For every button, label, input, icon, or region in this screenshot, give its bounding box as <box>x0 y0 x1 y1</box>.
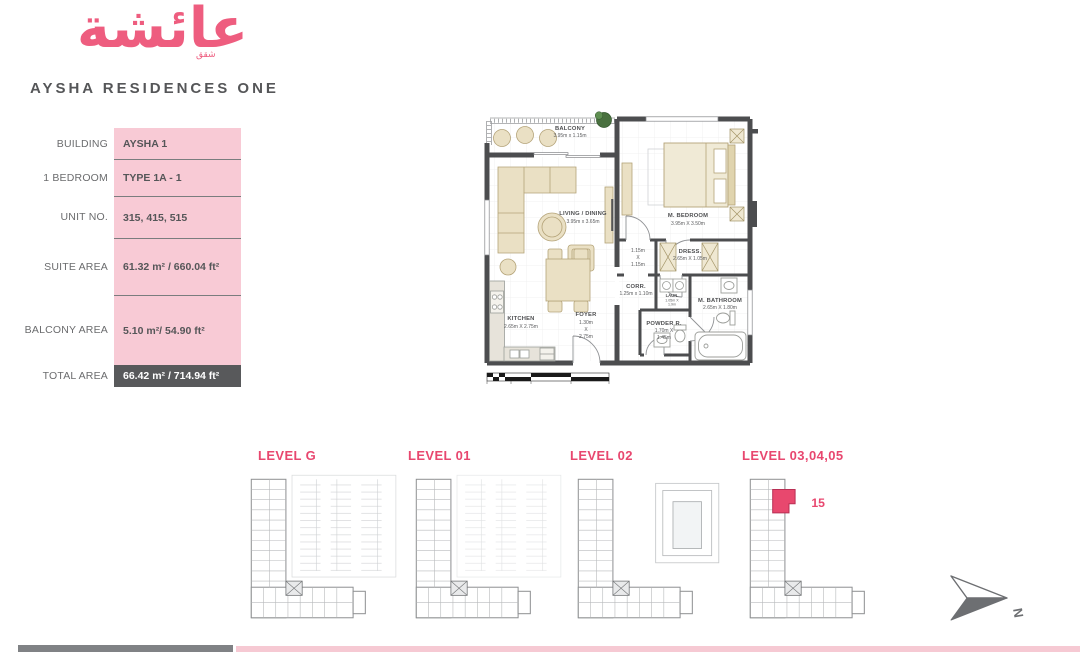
level-g-title: LEVEL G <box>235 448 403 463</box>
row-label: SUITE AREA <box>0 238 114 295</box>
table-row-building: BUILDING AYSHA 1 <box>0 128 241 159</box>
label-kitchen: KITCHEN <box>507 316 534 322</box>
table-row-bedroom-type: 1 BEDROOM TYPE 1A - 1 <box>0 159 241 196</box>
dims-corr: 1.25m x 1.10m <box>619 291 652 297</box>
unit-number-badge: 15 <box>811 496 825 510</box>
table-row-unit-no: UNIT NO. 315, 415, 515 <box>0 196 241 238</box>
dims-powder-1: 1.70m X <box>655 328 674 334</box>
row-value: AYSHA 1 <box>114 128 241 159</box>
laundry-machines <box>660 279 686 292</box>
arabic-logo: عائشة <box>55 0 270 64</box>
balcony-furniture <box>494 127 557 147</box>
flyer-page: عائشة شقق AYSHA RESIDENCES ONE BUILDING … <box>0 0 1080 654</box>
dims-powder-2: 1.45m <box>657 335 671 341</box>
row-value: TYPE 1A - 1 <box>114 159 241 196</box>
label-balcony: BALCONY <box>555 126 585 132</box>
level-02-title: LEVEL 02 <box>562 448 730 463</box>
dims-foyer-3: 2.75m <box>579 334 593 340</box>
row-label: BUILDING <box>0 128 114 159</box>
row-label: 1 BEDROOM <box>0 159 114 196</box>
dims-dress: 2.65m X 1.05m <box>673 256 707 262</box>
arabic-logo-subtext: شقق <box>196 50 216 60</box>
level-01-plan <box>400 463 568 631</box>
label-powder: POWDER R. <box>646 321 681 327</box>
dims-closet-1: 1.15m <box>631 248 645 254</box>
dims-kitchen: 2.65m X 2.75m <box>504 324 538 330</box>
north-label: N <box>1010 607 1026 619</box>
wall-pier <box>750 201 757 227</box>
level-02-plan <box>562 463 730 631</box>
wall-step <box>750 129 758 134</box>
row-label: UNIT NO. <box>0 196 114 238</box>
table-row-balcony-area: BALCONY AREA 5.10 m²/ 54.90 ft² <box>0 295 241 365</box>
highlighted-unit-15 <box>773 489 795 512</box>
unit-details-table: BUILDING AYSHA 1 1 BEDROOM TYPE 1A - 1 U… <box>0 128 241 387</box>
level-01-title: LEVEL 01 <box>400 448 568 463</box>
footer-bar-pink <box>236 646 1080 652</box>
north-arrow: N <box>945 568 1030 630</box>
label-foyer: FOYER <box>576 312 598 318</box>
label-living: LIVING / DINING <box>559 211 607 217</box>
level-g-panel: LEVEL G <box>235 448 403 636</box>
row-value: 5.10 m²/ 54.90 ft² <box>114 295 241 365</box>
dims-laun-2: 1.9m <box>668 303 676 307</box>
dims-foyer-1: 1.30m <box>579 320 593 326</box>
level-g-plan <box>235 463 403 631</box>
dims-closet-3: 1.15m <box>631 262 645 268</box>
level-030405-plan: 15 <box>734 463 902 631</box>
level-030405-title: LEVEL 03,04,05 <box>734 448 902 463</box>
page-title: AYSHA RESIDENCES ONE <box>30 80 279 97</box>
table-row-total-area: TOTAL AREA 66.42 m² / 714.94 ft² <box>0 365 241 387</box>
unit-floor-plan: BALCONY 3.95m x 1.15m LIVING / DINING 3.… <box>478 105 763 390</box>
level-030405-panel: LEVEL 03,04,05 15 <box>734 448 902 636</box>
footer-bar-gray <box>18 645 233 652</box>
row-value: 66.42 m² / 714.94 ft² <box>114 365 241 387</box>
row-value: 315, 415, 515 <box>114 196 241 238</box>
label-dress: DRESS. <box>679 249 702 255</box>
row-label: TOTAL AREA <box>0 365 114 387</box>
row-label: BALCONY AREA <box>0 295 114 365</box>
dims-bathroom: 2.65m X 1.80m <box>703 305 737 311</box>
row-value: 61.32 m² / 660.04 ft² <box>114 238 241 295</box>
level-01-panel: LEVEL 01 <box>400 448 568 636</box>
label-bathroom: M. BATHROOM <box>698 298 742 304</box>
dims-living: 3.95m x 3.65m <box>566 219 599 225</box>
level-02-panel: LEVEL 02 <box>562 448 730 636</box>
label-corr: CORR. <box>626 284 646 290</box>
label-laun: LAUN. <box>666 293 679 298</box>
dims-bedroom: 3.95m X 3.50m <box>671 221 705 227</box>
label-bedroom: M. BEDROOM <box>668 213 708 219</box>
scale-bar <box>487 373 609 384</box>
table-row-suite-area: SUITE AREA 61.32 m² / 660.04 ft² <box>0 238 241 295</box>
dims-balcony: 3.95m x 1.15m <box>553 133 586 139</box>
